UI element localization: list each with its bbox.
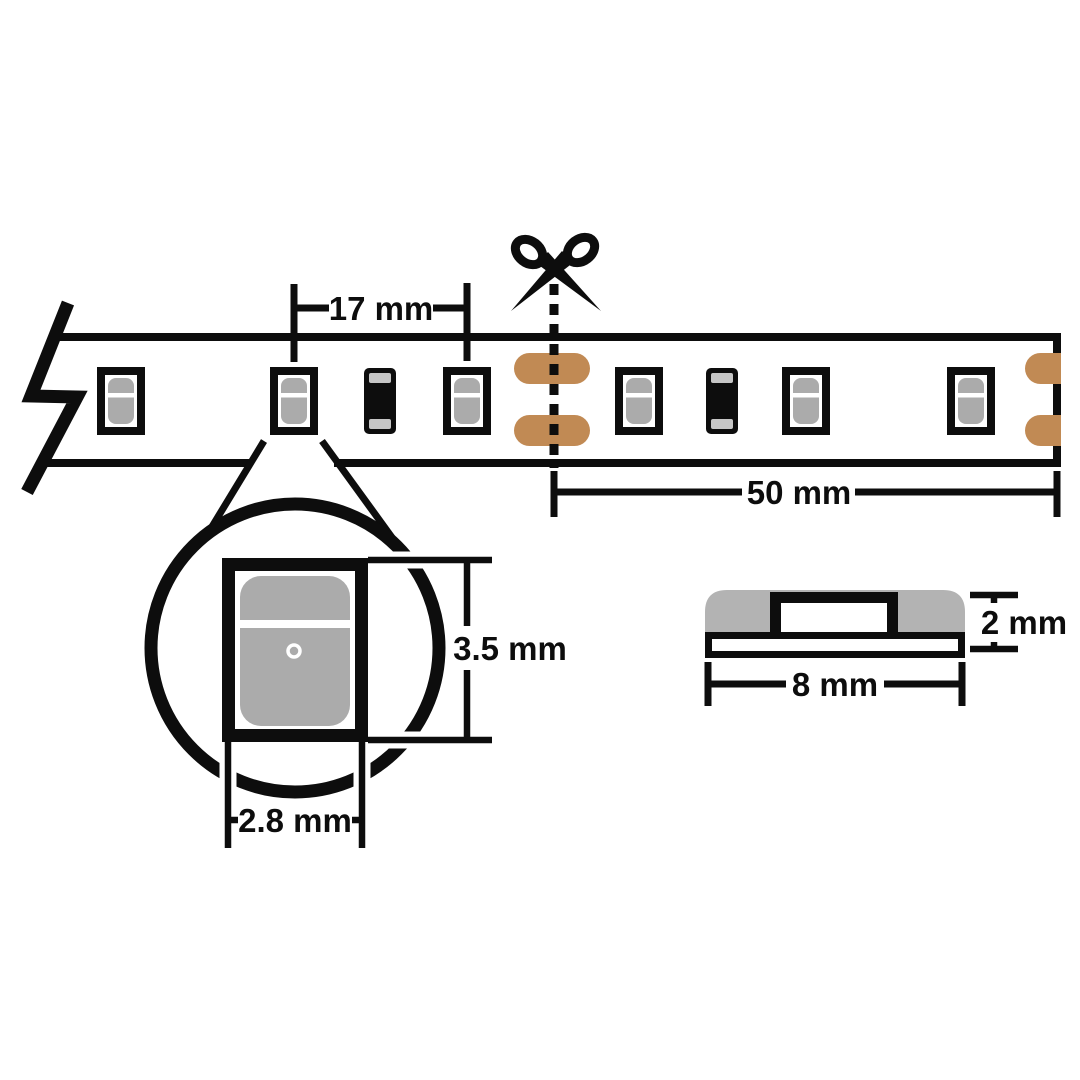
led-chip-2 (270, 367, 318, 435)
solder-pad-pair-strip-end (1025, 353, 1080, 446)
resistor-1 (364, 368, 396, 434)
led-chip-5 (782, 367, 830, 435)
led-phosphor-divider (240, 620, 350, 628)
magnified-led-package (222, 558, 368, 742)
segment-length-label: 50 mm (747, 474, 852, 511)
led-chip-6 (947, 367, 995, 435)
led-pitch-label: 17 mm (329, 290, 434, 327)
dimension-strip-width: 8 mm (708, 662, 962, 706)
led-chip-4 (615, 367, 663, 435)
diagram-canvas: 17 mm 50 mm (0, 0, 1080, 1080)
dimension-segment-length: 50 mm (554, 471, 1057, 517)
led-chip-1 (97, 367, 145, 435)
led-chip-3 (443, 367, 491, 435)
led-magnifier-callout: 3.5 mm 2.8 mm (151, 441, 570, 848)
strip-cross-section-view: 2 mm 8 mm (705, 590, 1072, 706)
led-width-label: 2.8 mm (238, 802, 352, 839)
dimension-led-height: 3.5 mm (452, 560, 570, 740)
strip-thickness-label: 2 mm (981, 604, 1067, 641)
led-height-label: 3.5 mm (453, 630, 567, 667)
resistor-2 (706, 368, 738, 434)
scissors-icon (510, 232, 601, 311)
dimension-strip-thickness: 2 mm (970, 595, 1072, 649)
led-strip-dimension-diagram: 17 mm 50 mm (0, 0, 1080, 1080)
dimension-led-pitch: 17 mm (294, 283, 467, 362)
strip-width-label: 8 mm (792, 666, 878, 703)
dimension-led-width: 2.8 mm (228, 799, 362, 841)
pcb-cross-section (709, 636, 962, 655)
led-cross-section (770, 592, 898, 634)
